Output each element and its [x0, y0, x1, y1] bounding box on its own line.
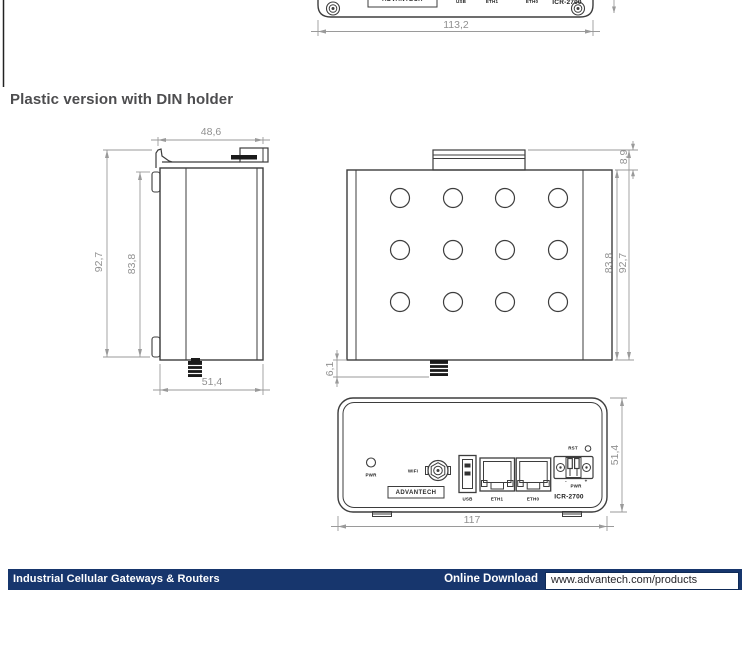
- side-view-lines: [152, 148, 268, 377]
- dim-8-9: 8,9: [618, 150, 630, 165]
- front-wifi-label: WiFi: [408, 468, 418, 473]
- top-partial-model-label: ICR-2700: [552, 0, 581, 6]
- dim-117: 117: [464, 514, 481, 526]
- top-partial-eth0-label: ETH0: [526, 0, 538, 4]
- dim-6-1: 6,1: [324, 362, 336, 377]
- dim-51-4-side: 51,4: [202, 376, 222, 388]
- front-eth0-label: ETH0: [527, 497, 539, 502]
- page-title: Plastic version with DIN holder: [10, 91, 233, 108]
- dim-92-7-side: 92,7: [93, 252, 105, 272]
- footer-url-text: www.advantech.com/products: [551, 572, 697, 589]
- top-partial-brand-logo: ADVANTECH: [382, 0, 423, 3]
- front-pwr-led-label: PWR: [365, 472, 376, 477]
- dim-92-7-top: 92,7: [617, 253, 629, 273]
- datasheet-page: ADVANTECH USB ETH1 ETH0 ICR-2700 113,2 P…: [0, 0, 750, 650]
- top-view-dimension-lines: [333, 141, 638, 387]
- front-rst-label: RST: [568, 446, 578, 451]
- dim-83-8-side: 83,8: [126, 254, 138, 274]
- footer-category-label: Industrial Cellular Gateways & Routers: [13, 569, 220, 590]
- front-usb-label: USB: [462, 497, 472, 502]
- top-view-lines: [347, 150, 612, 376]
- front-minus-mark: -: [565, 479, 567, 484]
- dim-113-2: 113,2: [443, 19, 469, 31]
- front-pwr-terminal-label: PWR: [570, 483, 581, 488]
- top-partial-eth1-label: ETH1: [486, 0, 498, 4]
- front-brand-logo: ADVANTECH: [396, 490, 437, 496]
- dim-48-6: 48,6: [201, 126, 221, 138]
- front-eth1-label: ETH1: [491, 497, 503, 502]
- front-model-label: ICR-2700: [554, 494, 583, 501]
- footer-online-download-label: Online Download: [400, 569, 538, 590]
- dim-83-8-top: 83,8: [603, 253, 615, 273]
- dim-51-4-front: 51,4: [609, 445, 621, 465]
- top-partial-usb-label: USB: [456, 0, 466, 4]
- front-plus-mark: +: [585, 479, 588, 484]
